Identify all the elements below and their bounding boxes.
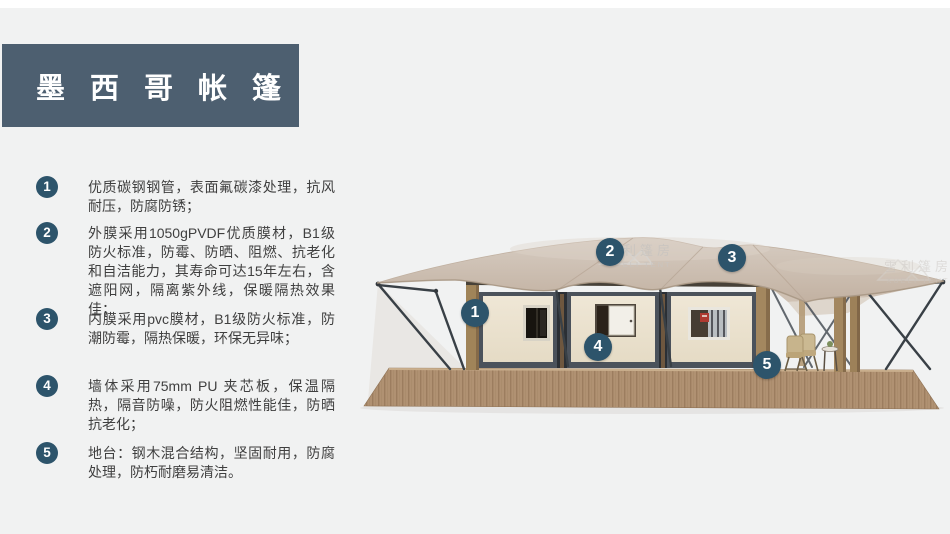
door-middle bbox=[595, 304, 636, 337]
slide-page: { "title": { "text": "墨西哥帐篷" }, "feature… bbox=[0, 0, 950, 534]
feature-text: 地台：钢木混合结构，坚固耐用，防腐处理，防朽耐磨易清洁。 bbox=[88, 444, 335, 482]
feature-text: 内膜采用pvc膜材，B1级防火标准，防潮防霉，隔热保暖，环保无异味； bbox=[88, 310, 335, 348]
feature-text: 优质碳钢钢管，表面氟碳漆处理，抗风耐压，防腐防锈； bbox=[88, 178, 335, 216]
feature-number-badge: 1 bbox=[36, 176, 58, 198]
window-left bbox=[523, 305, 550, 341]
feature-number-badge: 4 bbox=[36, 375, 58, 397]
tent-figure: 雪利篷房 XUELI TENT 雪利篷房 XUELI TENT bbox=[352, 210, 950, 434]
callout-badge-2: 2 bbox=[596, 238, 624, 266]
page-title: 墨西哥帐篷 bbox=[36, 65, 306, 107]
deck-shape bbox=[364, 368, 939, 409]
feature-text: 墙体采用75mm PU 夹芯板，保温隔热，隔音防噪，防火阻燃性能佳，防晒抗老化； bbox=[88, 377, 335, 434]
feature-number-badge: 5 bbox=[36, 442, 58, 464]
tent-illustration bbox=[352, 210, 950, 434]
callout-badge-5: 5 bbox=[753, 351, 781, 379]
title-banner: 墨西哥帐篷 bbox=[2, 44, 299, 127]
window-right bbox=[688, 307, 730, 340]
feature-number-badge: 2 bbox=[36, 222, 58, 244]
callout-badge-4: 4 bbox=[584, 333, 612, 361]
feature-text: 外膜采用1050gPVDF优质膜材，B1级防火标准，防霉、防晒、阻燃、抗老化和自… bbox=[88, 224, 335, 319]
top-white-strip bbox=[0, 0, 950, 8]
feature-number-badge: 3 bbox=[36, 308, 58, 330]
callout-badge-1: 1 bbox=[461, 299, 489, 327]
callout-badge-3: 3 bbox=[718, 244, 746, 272]
